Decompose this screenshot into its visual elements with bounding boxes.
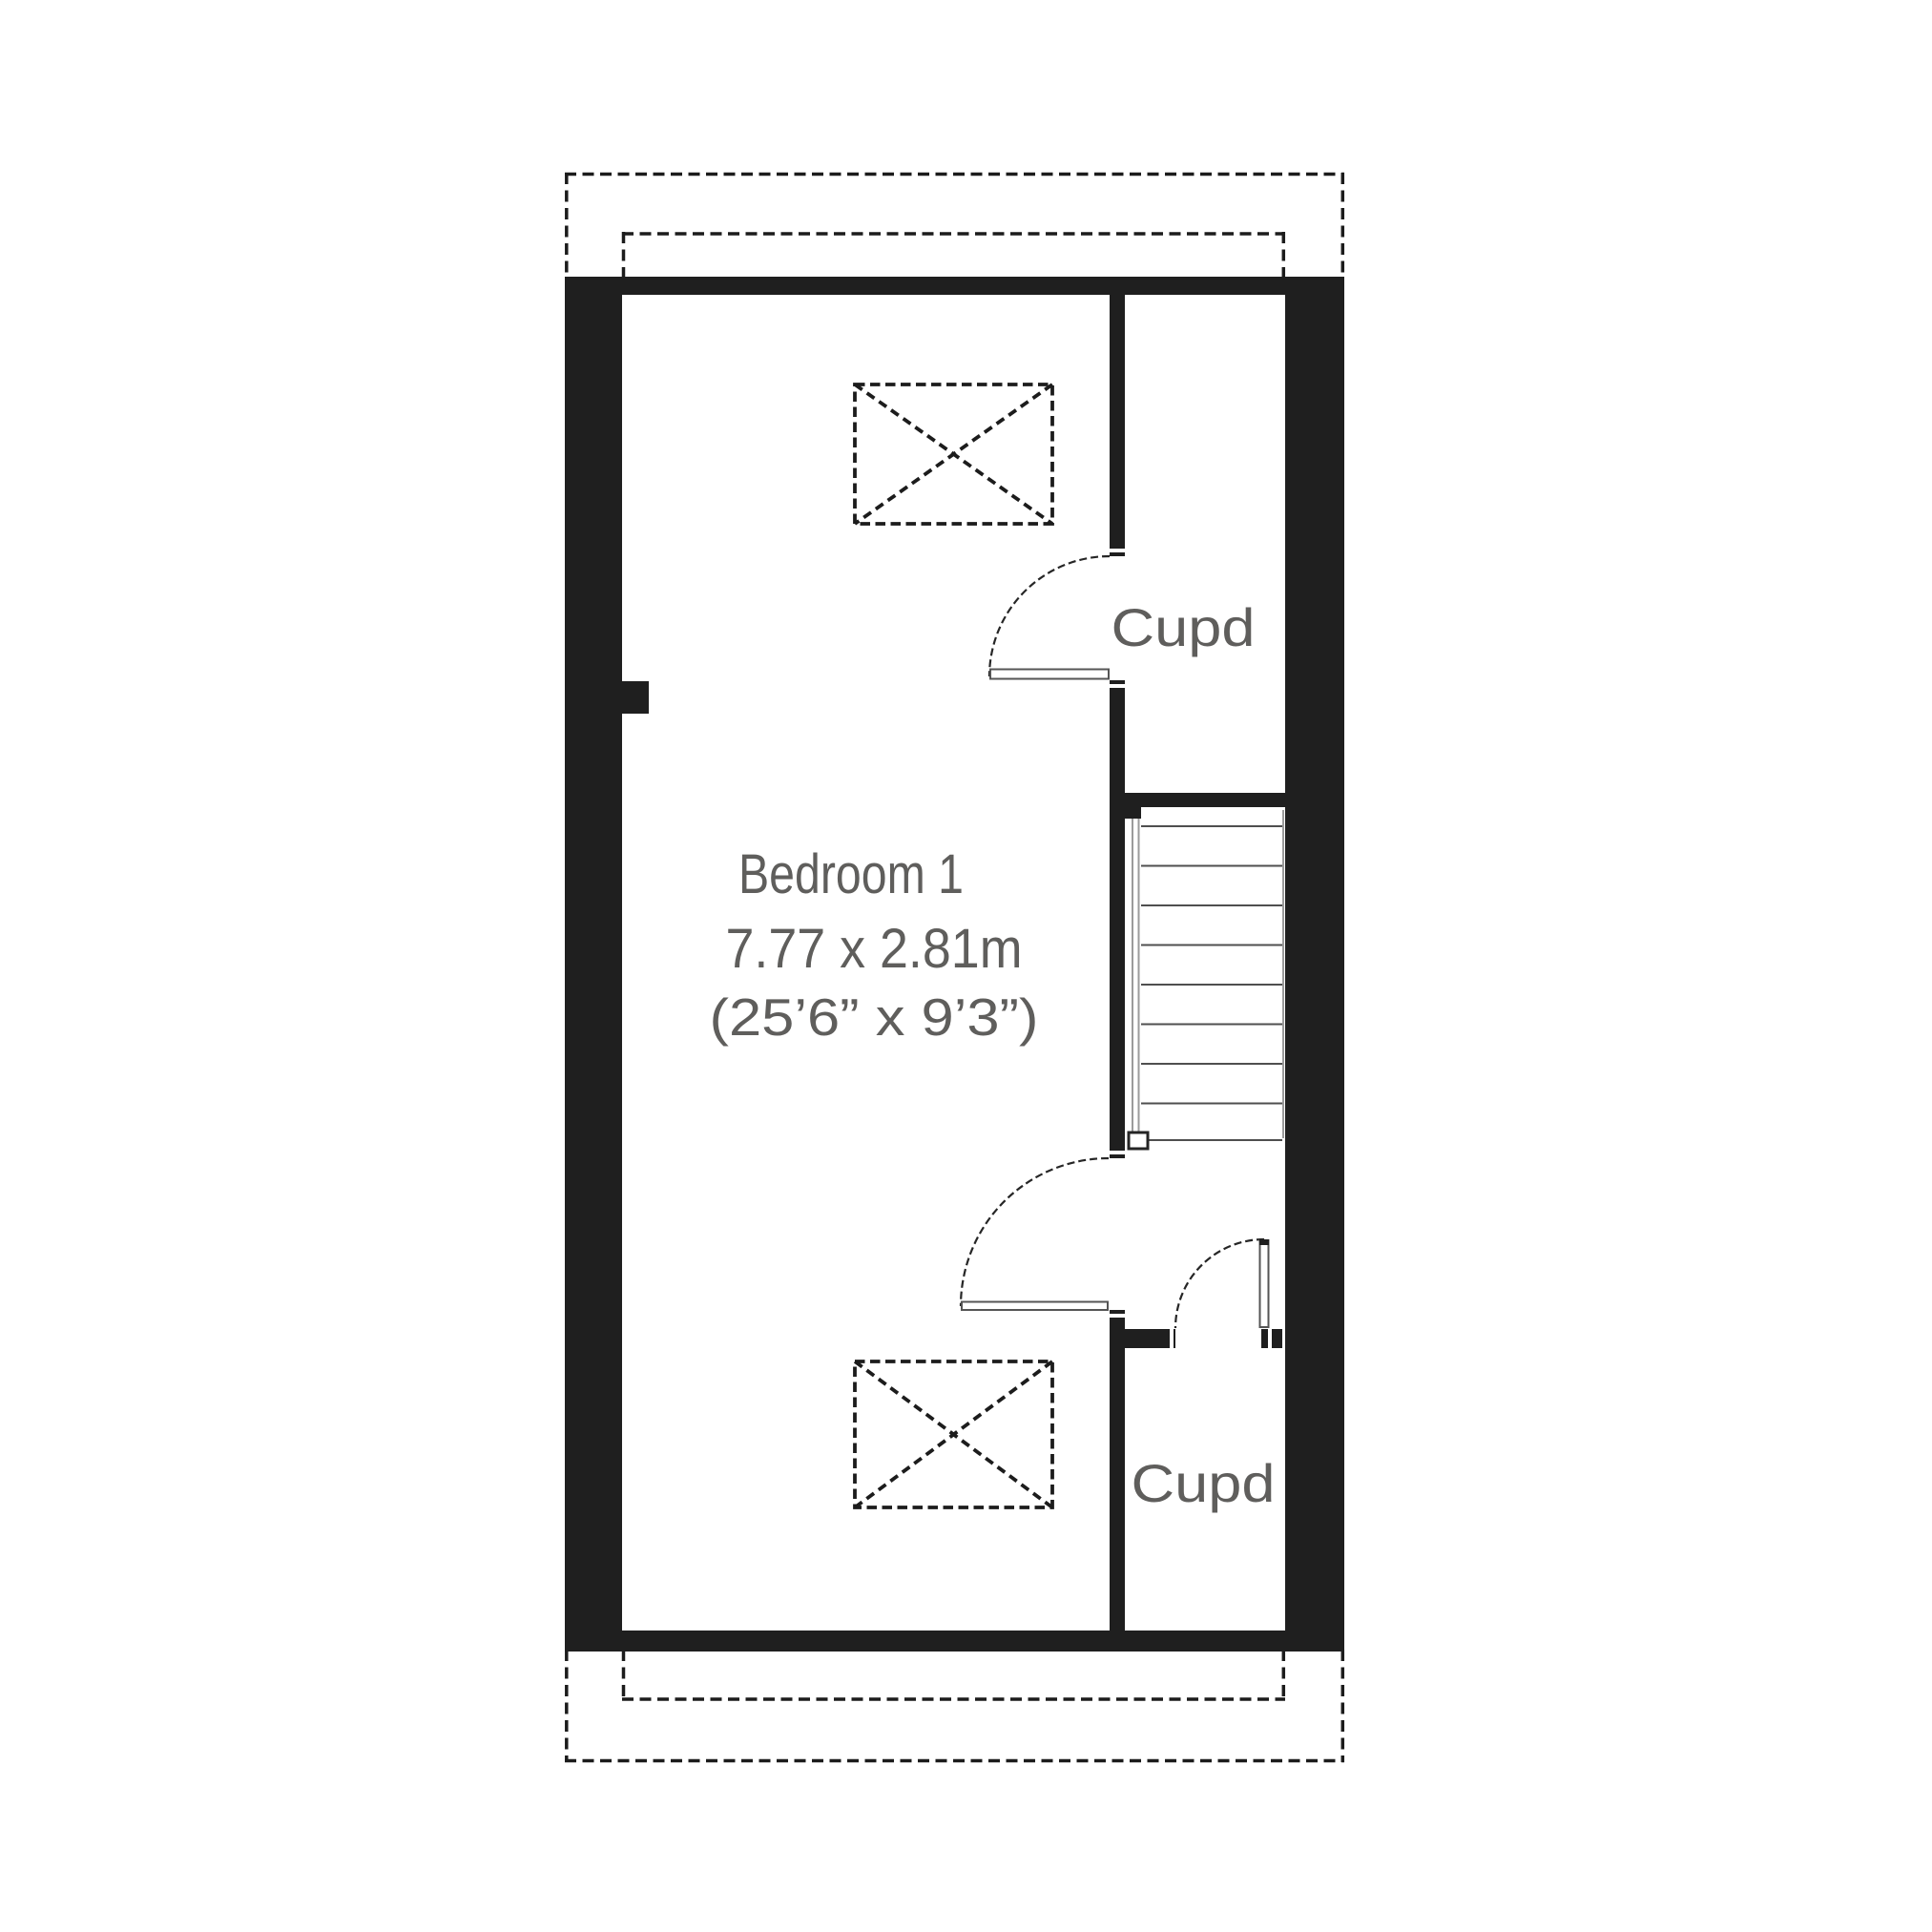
svg-text:(25’6” x 9’3”): (25’6” x 9’3”) [710,987,1039,1047]
svg-text:Bedroom 1: Bedroom 1 [738,843,964,905]
svg-text:7.77 x 2.81m: 7.77 x 2.81m [726,918,1023,980]
svg-text:Cupd: Cupd [1111,597,1256,657]
svg-text:Cupd: Cupd [1132,1453,1276,1513]
